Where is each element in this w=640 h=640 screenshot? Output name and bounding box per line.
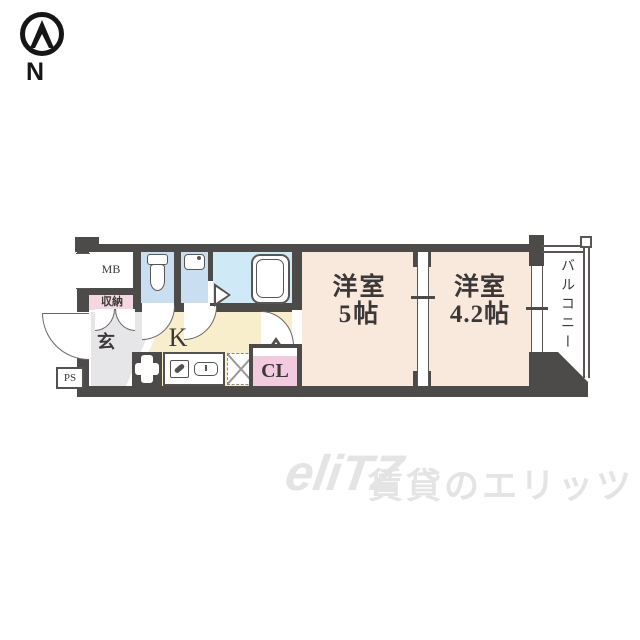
closet-door-panel — [253, 348, 297, 356]
bathtub-inner — [256, 259, 284, 298]
western-room-4-2-label: 洋室 4.2帖 — [429, 268, 531, 334]
entrance-door-arc — [42, 313, 89, 360]
balcony-rail-top — [542, 245, 584, 253]
western-room-4-2-size: 4.2帖 — [450, 301, 510, 329]
wall-toilet-washbasin — [174, 252, 181, 303]
pipe-space-label: PS — [58, 369, 82, 387]
sliding-partition — [417, 252, 429, 386]
western-room-5-label: 洋室 5帖 — [302, 268, 417, 334]
washbasin-icon — [184, 254, 205, 270]
toilet-bowl-icon — [150, 264, 165, 291]
mb-opening — [76, 253, 90, 289]
closet-label: CL — [253, 356, 297, 386]
wall-top — [77, 244, 542, 252]
balcony-label: バルコニー — [552, 258, 576, 378]
cutting-board-icon — [170, 360, 189, 378]
wall-mb-bottom — [77, 288, 141, 295]
western-room-4-2-name: 洋室 — [454, 274, 506, 302]
washbasin-faucet-icon — [197, 256, 201, 260]
cutting-board-handle — [174, 363, 186, 374]
meter-box-label: MB — [89, 252, 133, 288]
western-room-5-size: 5帖 — [339, 301, 381, 329]
balcony-rail-post — [580, 236, 592, 248]
closet-unit: CL — [249, 344, 302, 390]
bath-folding-door-fill — [216, 287, 228, 303]
bathtub-icon — [251, 254, 290, 304]
kitchen-counter — [163, 352, 225, 386]
kitchen-label: K — [158, 322, 198, 354]
storage-label: 収納 — [89, 295, 135, 310]
stove-burner-h — [135, 363, 159, 375]
entrance-label: 玄 — [88, 330, 124, 356]
bath-door-gap — [208, 281, 213, 303]
balcony-rail-right — [583, 248, 590, 378]
wall-bottom — [77, 386, 575, 397]
western-room-5-name: 洋室 — [332, 274, 386, 302]
stove-icon — [132, 352, 162, 386]
kitchen-sink-icon — [194, 362, 218, 376]
pipe-space-box: PS — [56, 367, 84, 389]
kitchen-faucet-icon — [205, 365, 207, 371]
floor-plan: CL PS MB 収納 玄 K 洋室 5帖 洋室 4.2帖 バルコニー — [0, 0, 640, 640]
watermark-tagline: 賃貸のエリッツ — [368, 458, 634, 509]
